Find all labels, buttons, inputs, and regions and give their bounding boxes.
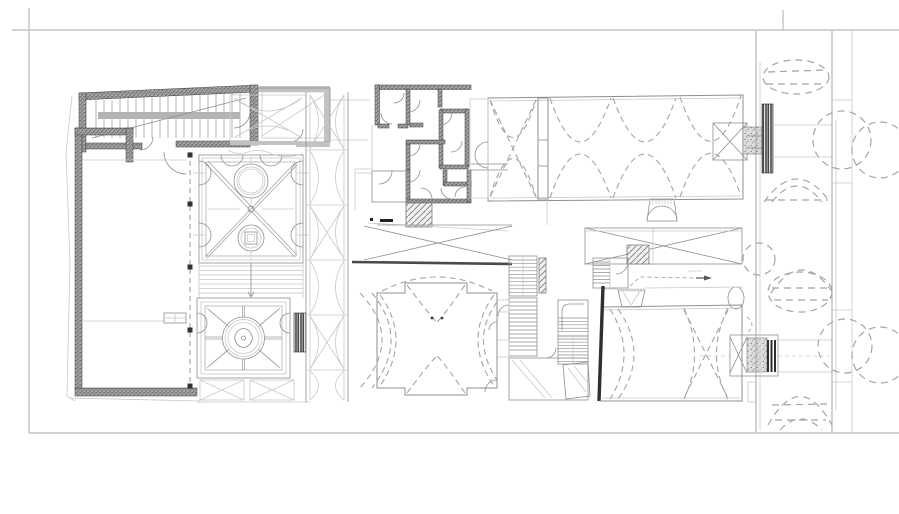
thick-west-wall xyxy=(599,286,603,401)
courtyard-stair xyxy=(593,258,628,288)
north-great-hall xyxy=(470,95,743,221)
garden-side-steps xyxy=(294,313,306,352)
ink-mark xyxy=(380,219,393,222)
site-outline-west xyxy=(66,96,75,401)
lower-parterre-garden xyxy=(197,298,306,378)
upper-parterre-garden xyxy=(193,155,309,263)
south-cross-hall xyxy=(360,277,497,395)
northeast-portal xyxy=(713,104,832,173)
garden-fence-panels xyxy=(197,380,310,402)
cellar-stair-hatch xyxy=(406,203,432,227)
south-stair-cluster xyxy=(489,256,590,400)
direction-arrow xyxy=(704,276,712,281)
service-rooms-cluster xyxy=(355,85,508,231)
south-hall-portal xyxy=(618,288,645,307)
tree-canopies-southeast xyxy=(743,243,899,430)
floor-plan-canvas xyxy=(0,0,899,514)
tree-canopies-northeast xyxy=(763,60,899,202)
garden-steps xyxy=(199,263,303,298)
drawing-sheet xyxy=(0,0,899,514)
southeast-portal xyxy=(700,335,832,402)
left-wing-room xyxy=(70,128,200,401)
hall-south-portal xyxy=(647,199,677,221)
retaining-wall-line xyxy=(352,262,512,264)
